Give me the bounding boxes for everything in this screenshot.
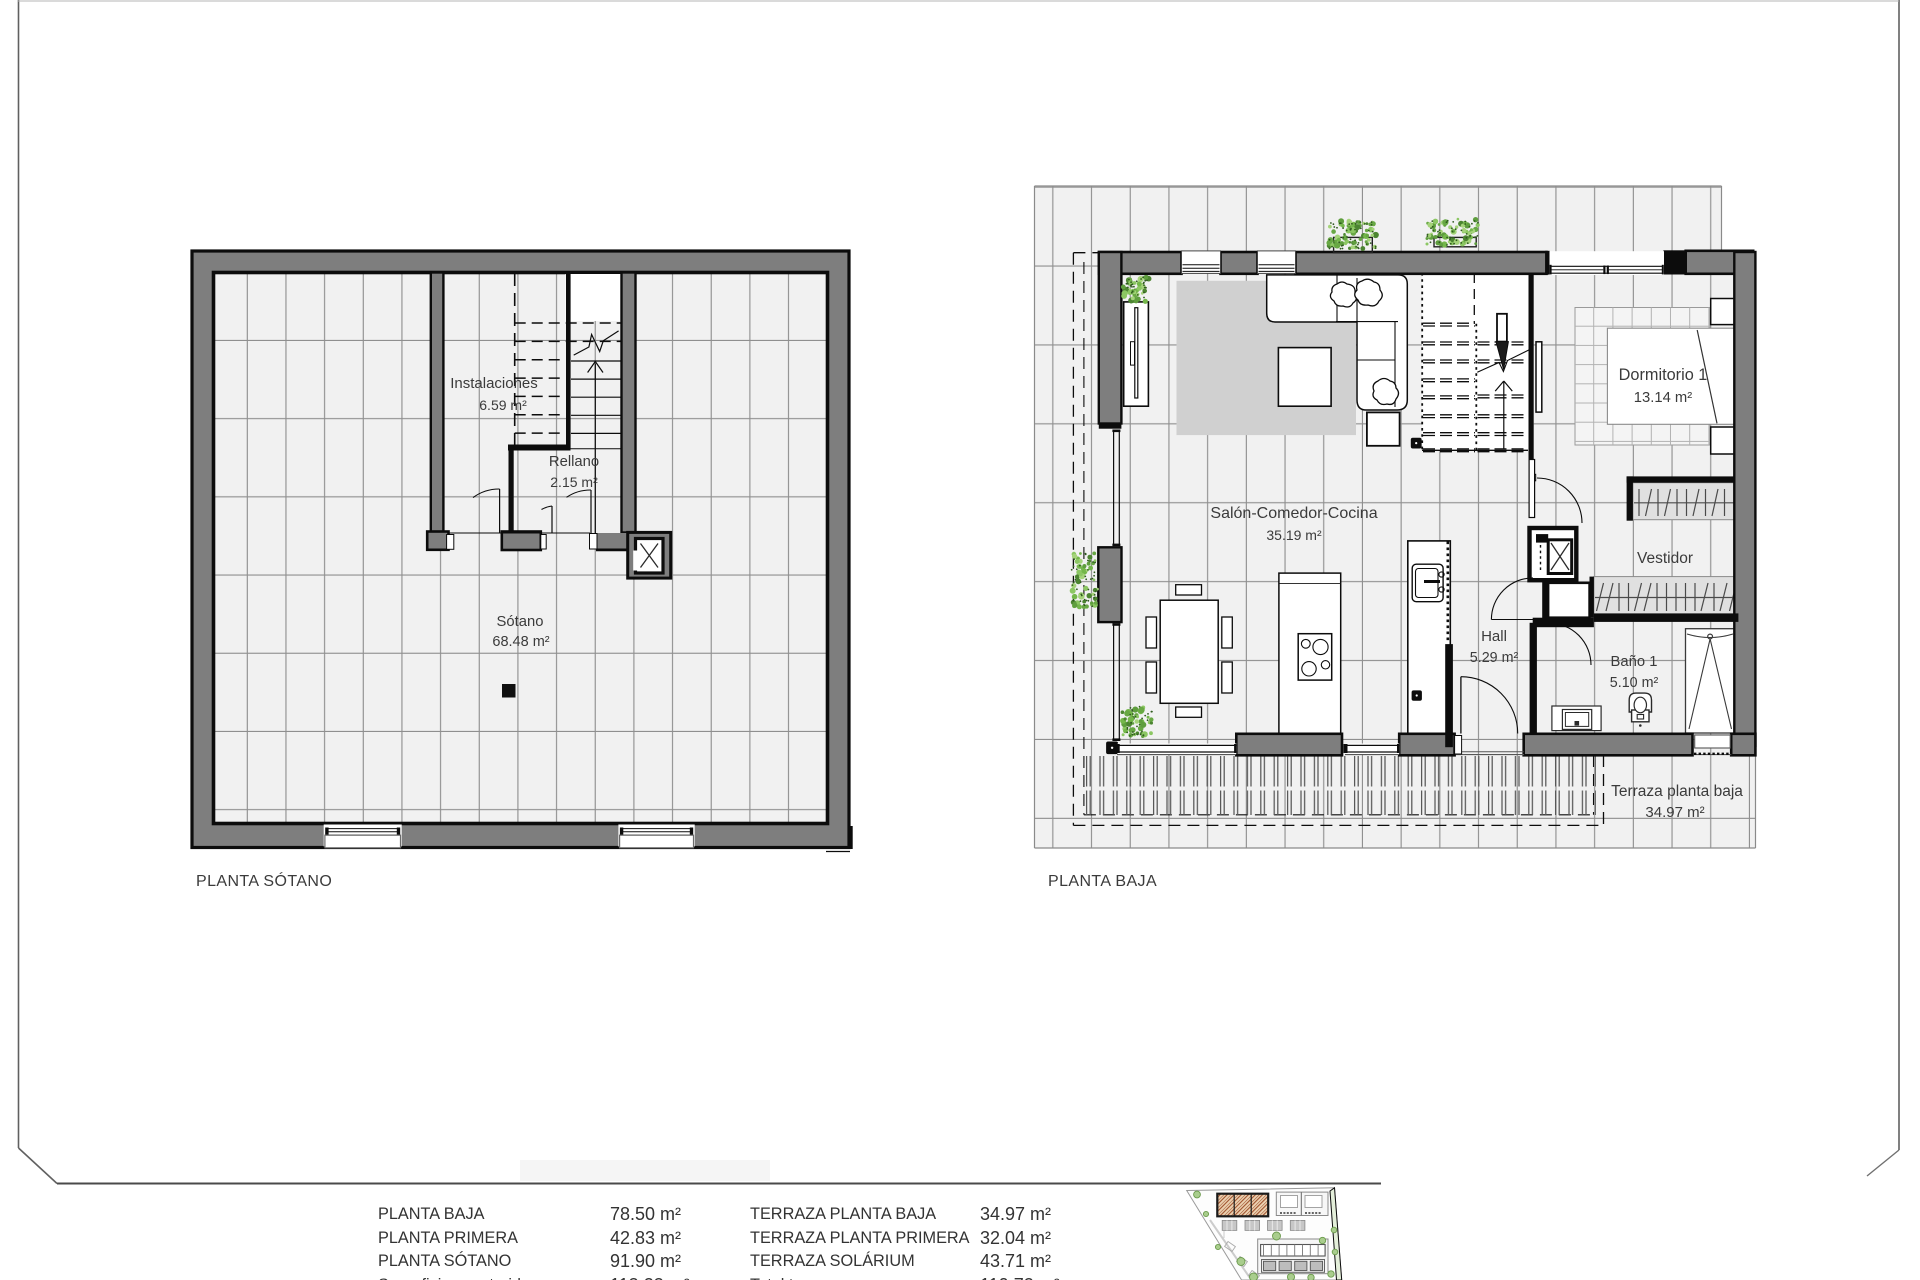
svg-text:5.10 m²: 5.10 m² bbox=[1610, 675, 1659, 691]
svg-text:68.48 m²: 68.48 m² bbox=[492, 634, 549, 650]
svg-text:TERRAZA PLANTA BAJA: TERRAZA PLANTA BAJA bbox=[750, 1205, 936, 1223]
svg-text:TERRAZA SOLÁRIUM: TERRAZA SOLÁRIUM bbox=[750, 1251, 915, 1270]
svg-text:Baño 1: Baño 1 bbox=[1611, 654, 1658, 670]
svg-text:Total terrazas: Total terrazas bbox=[750, 1276, 848, 1280]
svg-text:6.59 m²: 6.59 m² bbox=[479, 397, 527, 413]
svg-text:35.19 m²: 35.19 m² bbox=[1266, 527, 1322, 543]
svg-text:Superficie construida: Superficie construida bbox=[378, 1276, 531, 1280]
svg-text:5.29 m²: 5.29 m² bbox=[1470, 650, 1519, 666]
svg-text:PLANTA BAJA: PLANTA BAJA bbox=[378, 1205, 485, 1223]
svg-text:Vestidor: Vestidor bbox=[1637, 550, 1693, 567]
svg-text:PLANTA BAJA: PLANTA BAJA bbox=[1048, 873, 1157, 890]
svg-text:43.71 m²: 43.71 m² bbox=[980, 1251, 1051, 1271]
svg-text:42.83 m²: 42.83 m² bbox=[610, 1228, 681, 1248]
svg-text:PLANTA SÓTANO: PLANTA SÓTANO bbox=[378, 1251, 511, 1270]
svg-text:110.72 m²: 110.72 m² bbox=[980, 1275, 1060, 1280]
svg-text:PLANTA SÓTANO: PLANTA SÓTANO bbox=[196, 871, 332, 890]
svg-text:Hall: Hall bbox=[1481, 628, 1507, 645]
svg-text:2.15 m²: 2.15 m² bbox=[550, 474, 598, 490]
svg-text:Rellano: Rellano bbox=[549, 454, 599, 470]
svg-text:78.50 m²: 78.50 m² bbox=[610, 1204, 681, 1224]
svg-text:PLANTA PRIMERA: PLANTA PRIMERA bbox=[378, 1229, 518, 1247]
svg-text:Terraza planta baja: Terraza planta baja bbox=[1611, 783, 1743, 800]
svg-text:34.97 m²: 34.97 m² bbox=[1645, 804, 1704, 821]
svg-text:Sótano: Sótano bbox=[497, 614, 544, 630]
svg-text:13.14 m²: 13.14 m² bbox=[1634, 390, 1692, 406]
svg-text:Instalaciones: Instalaciones bbox=[450, 375, 538, 392]
svg-text:Dormitorio 1: Dormitorio 1 bbox=[1619, 366, 1708, 384]
svg-text:91.90 m²: 91.90 m² bbox=[610, 1251, 681, 1271]
svg-text:Salón-Comedor-Cocina: Salón-Comedor-Cocina bbox=[1210, 505, 1377, 522]
svg-text:34.97 m²: 34.97 m² bbox=[980, 1204, 1051, 1224]
svg-text:TERRAZA PLANTA PRIMERA: TERRAZA PLANTA PRIMERA bbox=[750, 1229, 970, 1247]
svg-text:32.04 m²: 32.04 m² bbox=[980, 1228, 1051, 1248]
svg-text:113.23 m²: 113.23 m² bbox=[610, 1275, 690, 1280]
